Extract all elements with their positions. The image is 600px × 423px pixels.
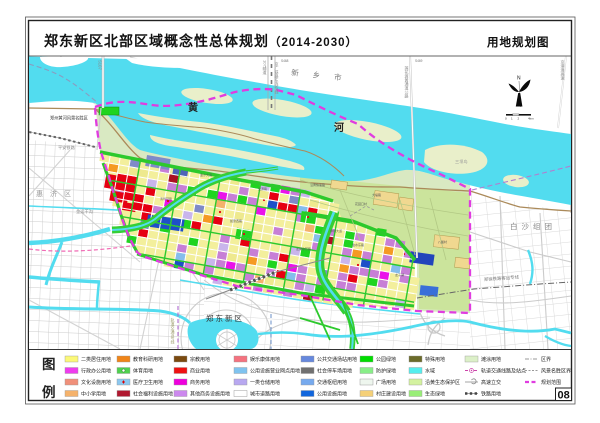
svg-text:高速立交: 高速立交 (481, 379, 501, 386)
svg-text:S107: S107 (98, 60, 103, 70)
svg-text:规划范围: 规划范围 (541, 379, 561, 386)
svg-text:八堡村: 八堡村 (438, 239, 447, 244)
svg-text:宗教用地: 宗教用地 (190, 356, 210, 363)
svg-text:轨道交通6号线: 轨道交通6号线 (171, 317, 176, 345)
svg-text:文化设施用地: 文化设施用地 (81, 379, 111, 386)
svg-text:二类居住用地: 二类居住用地 (81, 356, 111, 363)
svg-text:例: 例 (42, 384, 56, 400)
svg-text:社会福利设施用地: 社会福利设施用地 (133, 391, 173, 398)
svg-text:公园绿地: 公园绿地 (376, 356, 396, 363)
svg-text:08: 08 (558, 390, 570, 402)
svg-text:S468: S468 (281, 59, 289, 63)
svg-text:金运干沟: 金运干沟 (76, 208, 93, 215)
svg-text:体育用地: 体育用地 (133, 368, 153, 375)
svg-text:铁路用地: 铁路用地 (481, 391, 501, 398)
svg-text:莲花渡黄通道公路: 莲花渡黄通道公路 (405, 65, 410, 99)
svg-text:平安铁路: 平安铁路 (58, 144, 76, 151)
svg-text:郑州黄河风景名胜区: 郑州黄河风景名胜区 (50, 115, 89, 122)
svg-text:公共交通场站用地: 公共交通场站用地 (317, 356, 357, 363)
svg-text:特殊用地: 特殊用地 (425, 356, 445, 363)
svg-text:如意西路: 如意西路 (230, 218, 242, 223)
svg-text:风景名胜区界: 风景名胜区界 (541, 368, 571, 375)
svg-text:金水东路: 金水东路 (352, 242, 364, 247)
svg-text:滩涂用地: 滩涂用地 (481, 356, 501, 363)
svg-text:教育科研用地: 教育科研用地 (133, 356, 163, 363)
svg-text:轨道交通线路及站点: 轨道交通线路及站点 (481, 368, 526, 375)
svg-text:郑东新区: 郑东新区 (206, 313, 244, 323)
svg-text:S469: S469 (415, 59, 423, 63)
svg-text:村庄建设用地: 村庄建设用地 (376, 391, 406, 398)
svg-text:清华园路: 清华园路 (160, 196, 172, 201)
svg-text:用地规划图: 用地规划图 (486, 35, 550, 49)
svg-text:城市道路用地: 城市道路用地 (250, 391, 280, 398)
svg-text:三坝岛: 三坝岛 (455, 158, 468, 165)
svg-text:黄: 黄 (188, 101, 198, 114)
svg-text:中州大道: 中州大道 (330, 228, 342, 233)
svg-text:图: 图 (42, 357, 56, 372)
svg-text:龙源路: 龙源路 (258, 186, 267, 191)
svg-text:交通枢纽用地: 交通枢纽用地 (317, 379, 347, 386)
svg-text:河: 河 (334, 122, 344, 134)
svg-text:生态绿地: 生态绿地 (425, 391, 445, 398)
svg-text:防护绿地: 防护绿地 (376, 368, 396, 375)
svg-text:水域: 水域 (425, 368, 435, 375)
svg-text:N: N (517, 76, 521, 82)
svg-text:大堤路: 大堤路 (372, 192, 381, 197)
svg-text:公用设施营业网点用地: 公用设施营业网点用地 (250, 368, 300, 375)
svg-text:107辅道: 107辅道 (263, 60, 268, 75)
svg-text:区界: 区界 (541, 357, 551, 363)
svg-text:社会停车场用地: 社会停车场用地 (317, 368, 352, 375)
svg-text:商业用地: 商业用地 (190, 368, 210, 375)
svg-text:娱乐康体用地: 娱乐康体用地 (250, 356, 280, 363)
svg-text:京港澳高速: 京港澳高速 (561, 59, 566, 81)
svg-text:中小学用地: 中小学用地 (81, 391, 106, 398)
svg-text:京广铁路东连专线: 京广铁路东连专线 (275, 61, 280, 94)
svg-text:广场用地: 广场用地 (376, 379, 396, 386)
svg-text:商务用地: 商务用地 (190, 379, 210, 386)
svg-text:4km: 4km (528, 117, 534, 121)
svg-text:龙子湖: 龙子湖 (395, 272, 404, 277)
svg-text:金沙大道: 金沙大道 (200, 172, 212, 177)
svg-text:花园口村: 花园口村 (355, 201, 367, 206)
svg-text:医疗卫生用地: 医疗卫生用地 (133, 379, 163, 386)
svg-text:沿黄快速路: 沿黄快速路 (310, 182, 325, 187)
svg-text:行政办公用地: 行政办公用地 (81, 368, 111, 375)
svg-text:公用设施用地: 公用设施用地 (317, 391, 347, 398)
svg-text:沿黄生态保护区: 沿黄生态保护区 (425, 379, 460, 386)
svg-text:龙湖中环路: 龙湖中环路 (296, 246, 311, 251)
svg-text:白沙组团: 白沙组团 (510, 221, 556, 231)
svg-text:一类仓储用地: 一类仓储用地 (250, 379, 280, 386)
svg-text:惠济区: 惠济区 (36, 189, 78, 198)
svg-text:其他商务设施用地: 其他商务设施用地 (190, 391, 230, 398)
